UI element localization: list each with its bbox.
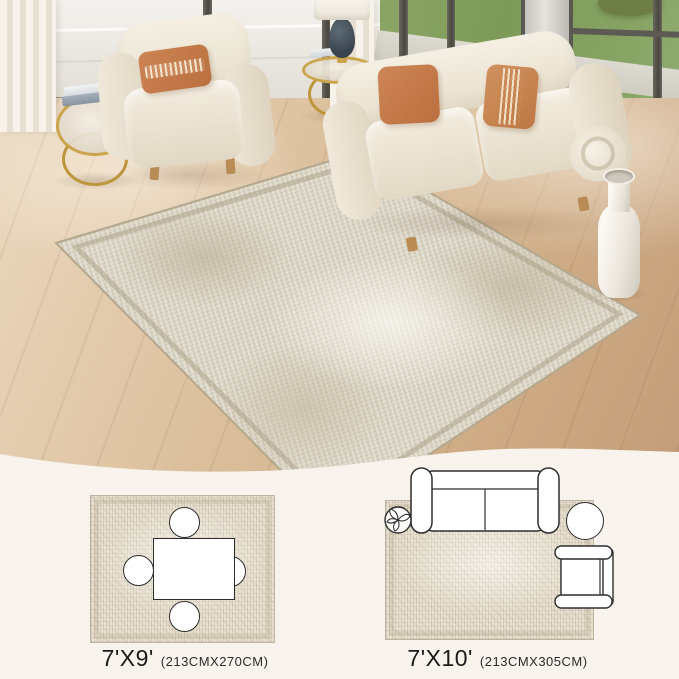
lifestyle-photo xyxy=(0,0,679,490)
armchair-seat-cushion xyxy=(122,78,246,170)
potted-plant-icon xyxy=(383,505,413,535)
lamp-shade xyxy=(314,0,370,20)
rug-top-view xyxy=(90,495,275,643)
round-side-table-icon xyxy=(566,502,604,540)
sofa-leg xyxy=(577,196,589,212)
orange-throw-pillow xyxy=(377,64,440,125)
white-floor-vase xyxy=(596,168,646,304)
curtain-left xyxy=(0,0,56,132)
armchair xyxy=(98,12,276,190)
chair-icon xyxy=(123,555,154,586)
size-diagram-7x9: 7'X9' (213CMX270CM) xyxy=(30,495,340,679)
size-label-7x10: 7'X10' (213CMX305CM) xyxy=(380,645,615,672)
rug-product-image: 7'X9' (213CMX270CM) xyxy=(0,0,679,679)
dimensions-text: (213CMX270CM) xyxy=(161,654,269,669)
sofa-leg xyxy=(406,236,418,252)
size-label-7x9: 7'X9' (213CMX270CM) xyxy=(30,645,340,672)
chair-icon xyxy=(169,507,200,538)
chair-icon xyxy=(169,601,200,632)
dining-table-icon xyxy=(153,538,235,600)
size-text: 7'X9' xyxy=(102,645,154,672)
vase-body xyxy=(598,204,640,298)
striped-throw-pillow xyxy=(482,64,539,130)
size-text: 7'X10' xyxy=(407,645,473,672)
armchair-leg xyxy=(225,158,235,175)
vase-mouth xyxy=(605,170,633,183)
armchair-icon xyxy=(554,545,616,609)
size-diagram-7x10: 7'X10' (213CMX305CM) xyxy=(380,460,615,679)
loveseat-sofa-icon xyxy=(410,467,560,534)
loveseat-sofa xyxy=(328,28,628,240)
dimensions-text: (213CMX305CM) xyxy=(480,654,588,669)
